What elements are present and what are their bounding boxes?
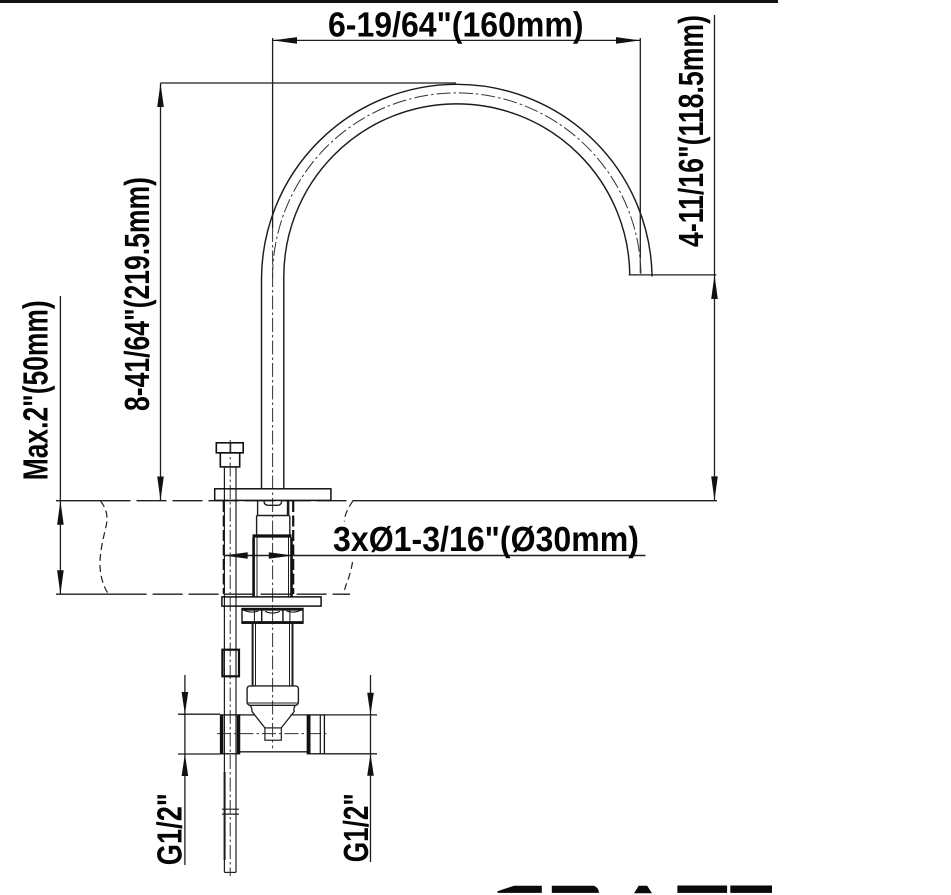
svg-text:3xØ1-3/16"(Ø30mm): 3xØ1-3/16"(Ø30mm): [333, 520, 639, 559]
svg-text:G1/2": G1/2": [337, 793, 376, 862]
svg-text:Max.2"(50mm): Max.2"(50mm): [17, 300, 56, 480]
svg-text:8-41/64"(219.5mm): 8-41/64"(219.5mm): [118, 177, 157, 411]
svg-text:4-11/16"(118.5mm): 4-11/16"(118.5mm): [672, 15, 711, 247]
svg-text:G1/2": G1/2": [151, 793, 190, 865]
svg-text:6-19/64"(160mm): 6-19/64"(160mm): [328, 6, 584, 45]
